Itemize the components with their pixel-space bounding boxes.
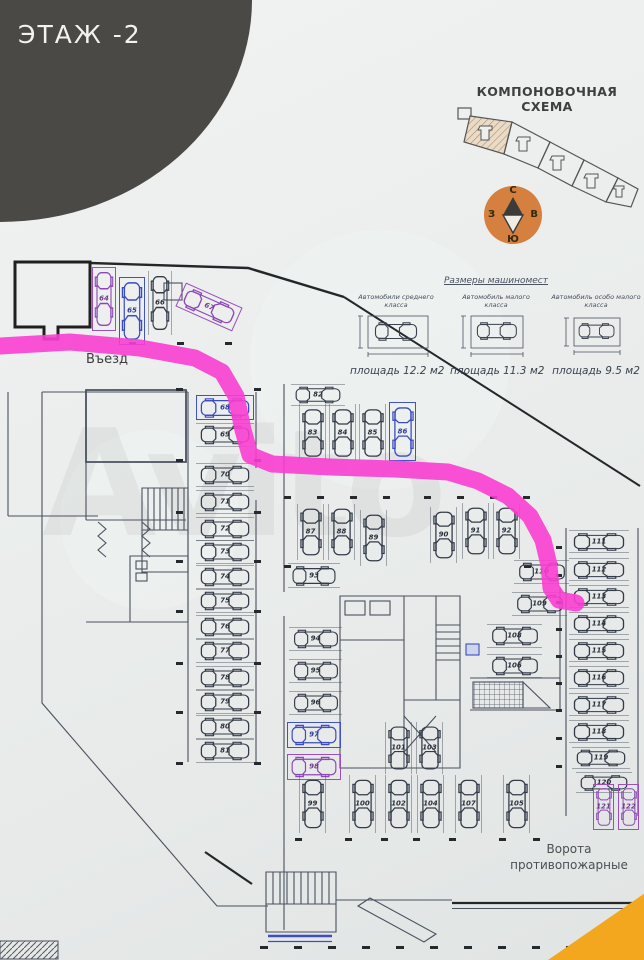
stall-number: 100	[350, 800, 375, 808]
parking-stall-100: 100	[349, 775, 376, 833]
stall-number: 89	[361, 534, 386, 542]
fire-gates-label: Ворота противопожарные	[498, 842, 640, 873]
stall-number: 119	[572, 754, 630, 762]
size-legend: Размеры машиномест Автомобили среднего к…	[350, 276, 642, 377]
size-diagram-icon	[554, 310, 638, 360]
parking-stall-112: 112	[569, 558, 629, 581]
parking-stall-85: 85	[359, 404, 386, 461]
stall-number: 69	[196, 431, 254, 439]
stall-number: 101	[386, 744, 411, 752]
stall-number: 88	[329, 528, 354, 536]
parking-stall-110: 110	[514, 560, 569, 584]
parking-stall-105: 105	[503, 775, 530, 833]
stall-number: 84	[330, 428, 355, 436]
parking-stall-88: 88	[328, 504, 355, 560]
parking-stall-74: 74	[196, 565, 254, 589]
stall-number: 103	[417, 744, 442, 752]
parking-stall-94: 94	[289, 627, 342, 651]
parking-stall-69: 69	[196, 423, 254, 447]
stall-number: 90	[431, 531, 456, 539]
stall-number: 79	[196, 698, 254, 706]
stall-number: 65	[120, 307, 144, 315]
stall-number: 110	[514, 568, 569, 576]
compass-west-label: З	[488, 209, 495, 220]
parking-stall-119: 119	[572, 747, 630, 769]
size-area-label: площадь 11.3 м2	[450, 365, 542, 377]
parking-stall-95: 95	[289, 659, 342, 683]
parking-stall-93: 93	[288, 563, 340, 588]
parking-stall-70: 70	[196, 463, 254, 487]
stall-number: 64	[93, 295, 115, 303]
parking-stall-66: 66	[148, 271, 172, 335]
size-area-label: площадь 12.2 м2	[350, 365, 442, 377]
stall-number: 111	[569, 537, 629, 545]
stall-number: 114	[569, 619, 629, 627]
stall-number: 80	[196, 723, 254, 731]
stall-number: 115	[569, 646, 629, 654]
stall-number: 102	[386, 800, 411, 808]
stall-number: 94	[289, 635, 342, 643]
parking-stall-114: 114	[569, 612, 629, 635]
entrance-label: Въезд	[86, 352, 128, 367]
size-class-label: Автомобиль особо малого класса	[550, 293, 642, 310]
size-item: Автомобиль малого класса площадь 11.3 м2	[450, 293, 542, 377]
parking-stall-97: 97	[287, 722, 341, 748]
stall-number: 99	[300, 800, 325, 808]
parking-stall-67: 67	[175, 283, 242, 332]
parking-stall-87: 87	[297, 504, 324, 560]
parking-stall-99: 99	[299, 775, 326, 833]
compass-south-label: Ю	[482, 234, 544, 245]
stall-number: 122	[619, 803, 638, 811]
parking-stall-92: 92	[493, 503, 520, 559]
stall-number: 112	[569, 565, 629, 573]
compass-east-label: В	[530, 209, 538, 220]
stall-number: 66	[149, 299, 171, 307]
parking-stall-81: 81	[196, 739, 254, 763]
parking-stall-91: 91	[462, 503, 489, 559]
stall-number: 82	[291, 391, 345, 399]
size-class-label: Автомобиль малого класса	[450, 293, 542, 310]
stall-number: 81	[196, 747, 254, 755]
parking-stall-90: 90	[430, 507, 457, 563]
stall-number: 78	[196, 674, 254, 682]
parking-stall-109: 109	[512, 592, 567, 616]
stall-number: 77	[196, 647, 254, 655]
stall-number: 74	[196, 573, 254, 581]
parking-stall-113: 113	[569, 585, 629, 608]
stall-number: 72	[196, 525, 254, 533]
parking-stall-75: 75	[196, 589, 254, 613]
stall-number: 118	[569, 727, 629, 735]
stall-number: 96	[289, 699, 342, 707]
compass-icon: С В Ю З	[482, 184, 544, 246]
parking-stall-104: 104	[417, 775, 444, 833]
stall-number: 93	[288, 571, 340, 579]
parking-stall-89: 89	[360, 510, 387, 566]
parking-stall-65: 65	[119, 277, 145, 345]
parking-stall-102: 102	[385, 775, 412, 833]
stall-number: 106	[487, 662, 542, 670]
size-item: Автомобиль особо малого класса площадь 9…	[550, 293, 642, 377]
parking-stall-78: 78	[196, 666, 254, 690]
stall-number: 97	[288, 731, 340, 739]
parking-stall-118: 118	[569, 720, 629, 743]
parking-stall-111: 111	[569, 530, 629, 553]
parking-stall-101: 101	[385, 722, 412, 774]
parking-stall-117: 117	[569, 693, 629, 716]
stall-number: 95	[289, 667, 342, 675]
parking-stall-121: 121	[593, 784, 614, 830]
stall-number: 71	[196, 498, 254, 506]
size-item: Автомобили среднего класса площадь 12.2 …	[350, 293, 442, 377]
stall-number: 108	[487, 632, 542, 640]
stall-number: 70	[196, 471, 254, 479]
stall-number: 83	[300, 428, 325, 436]
parking-stall-83: 83	[299, 404, 326, 461]
parking-stall-71: 71	[196, 490, 254, 514]
stall-number: 117	[569, 700, 629, 708]
size-legend-title: Размеры машиномест	[350, 276, 642, 286]
parking-stall-106: 106	[487, 654, 542, 678]
size-diagram-icon	[454, 310, 538, 360]
parking-stall-86: 86	[389, 402, 416, 461]
stall-number: 116	[569, 673, 629, 681]
stall-number: 107	[456, 800, 481, 808]
parking-stall-77: 77	[196, 639, 254, 663]
parking-stall-80: 80	[196, 715, 254, 739]
parking-stall-116: 116	[569, 666, 629, 689]
stall-number: 105	[504, 800, 529, 808]
scheme-map-icon	[450, 100, 642, 218]
parking-stall-115: 115	[569, 639, 629, 662]
stall-number: 113	[569, 592, 629, 600]
stall-number: 92	[494, 527, 519, 535]
parking-stall-82: 82	[291, 384, 345, 406]
parking-stall-122: 122	[618, 784, 639, 830]
stall-number: 98	[288, 763, 340, 771]
stall-number: 85	[360, 428, 385, 436]
stall-number: 121	[594, 803, 613, 811]
parking-stall-103: 103	[416, 722, 443, 774]
stall-number: 68	[197, 403, 253, 411]
compass-north-label: С	[482, 185, 544, 196]
stall-number: 91	[463, 527, 488, 535]
parking-stall-64: 64	[92, 267, 116, 331]
size-area-label: площадь 9.5 м2	[550, 365, 642, 377]
parking-stall-73: 73	[196, 540, 254, 564]
stall-number: 87	[298, 528, 323, 536]
stall-number: 109	[512, 600, 567, 608]
stall-number: 76	[196, 623, 254, 631]
stall-number: 104	[418, 800, 443, 808]
parking-stall-96: 96	[289, 691, 342, 715]
parking-stall-72: 72	[196, 517, 254, 541]
stall-number: 86	[390, 427, 415, 435]
parking-stall-79: 79	[196, 690, 254, 714]
stall-number: 75	[196, 597, 254, 605]
parking-stall-108: 108	[487, 624, 542, 648]
parking-stall-76: 76	[196, 615, 254, 639]
size-diagram-icon	[354, 310, 438, 360]
parking-stall-84: 84	[329, 404, 356, 461]
parking-stall-68: 68	[196, 395, 254, 420]
page-title: ЭТАЖ -2	[18, 20, 142, 49]
parking-stall-107: 107	[455, 775, 482, 833]
stall-number: 73	[196, 548, 254, 556]
size-class-label: Автомобили среднего класса	[350, 293, 442, 310]
